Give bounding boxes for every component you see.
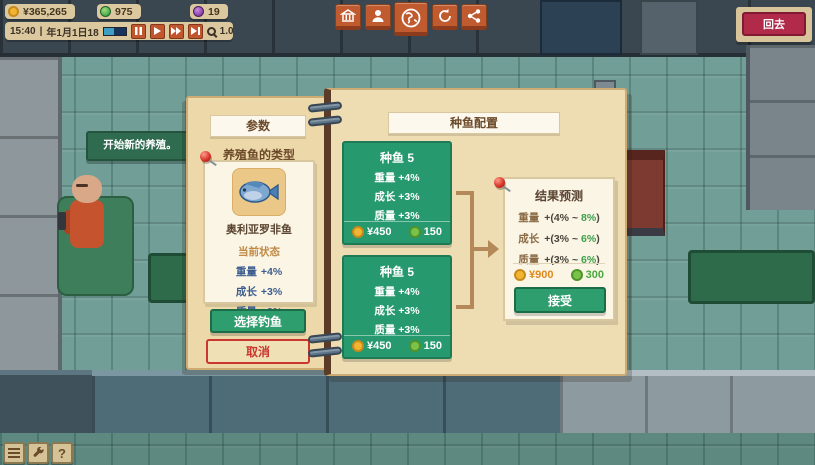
result-price-row: ¥900 300: [505, 269, 613, 281]
broodfish-1-stat-growth: 成长 +3%: [344, 189, 450, 204]
bottom-counter-right: [560, 370, 815, 433]
params-page: 参数 养殖鱼的类型 奥利亚罗非鱼 当前状态 重量+4% 成长+3%: [186, 96, 332, 370]
pushpin-icon: [494, 177, 505, 188]
cancel-button[interactable]: 取消: [206, 339, 310, 364]
connector-line: [470, 247, 490, 251]
gold-coin-icon: [352, 226, 364, 238]
world-button[interactable]: [394, 2, 428, 36]
config-header-banner: 种鱼配置: [388, 112, 560, 134]
broodfish-card-1[interactable]: 种鱼 5 重量 +4% 成长 +3% 质量 +3% ¥450 150: [342, 141, 452, 245]
character-held-item: [58, 212, 66, 230]
menu-button[interactable]: [3, 442, 25, 464]
accept-label: 接受: [548, 292, 572, 309]
result-stat-quality: 质量 +(3% ~ 6%): [505, 252, 613, 267]
speech-bubble: 开始新的养殖。: [86, 131, 194, 161]
broodfish-1-title: 种鱼 5: [344, 149, 450, 166]
gold-coin-icon: [352, 340, 364, 352]
help-icon: ?: [58, 446, 66, 461]
money-value: ¥365,265: [23, 6, 67, 18]
broodfish-card-2[interactable]: 种鱼 5 重量 +4% 成长 +3% 质量 +3% ¥450 150: [342, 255, 452, 359]
help-button[interactable]: ?: [51, 442, 73, 464]
appliance: [640, 0, 698, 55]
time-separator: |: [40, 26, 43, 37]
cancel-label: 取消: [246, 343, 270, 360]
left-sink-units: [0, 57, 62, 372]
play-icon: [154, 27, 161, 35]
select-fish-button[interactable]: 选择钓鱼: [210, 309, 306, 333]
feed-value: 975: [115, 6, 133, 18]
magnifier-icon[interactable]: [207, 27, 216, 36]
money-badge: ¥365,265: [5, 4, 75, 19]
fastest-icon: [191, 27, 200, 35]
fish-status-label: 当前状态: [205, 244, 313, 259]
params-header: 参数: [246, 119, 270, 133]
game-screen: 开始新的养殖。 ¥365,265 975 19 15:40 | 年1月1日18 …: [0, 0, 815, 465]
back-panel: 回去: [736, 7, 812, 42]
broodfish-2-stat-weight: 重量 +4%: [344, 284, 450, 299]
broodfish-1-stat-weight: 重量 +4%: [344, 170, 450, 185]
fast-forward-button[interactable]: [169, 24, 184, 39]
pushpin-icon: [200, 151, 211, 162]
feed-badge: 975: [97, 4, 141, 19]
building-icon: [340, 8, 356, 24]
gold-coin-icon: [8, 6, 19, 17]
character-icon: [370, 8, 386, 24]
fast-forward-icon: [171, 27, 181, 35]
cycle-button[interactable]: [432, 4, 458, 30]
result-stat-weight: 重量 +(4% ~ 8%): [505, 210, 613, 225]
result-prediction-card: 结果预测 重量 +(4% ~ 8%) 成长 +(3% ~ 6%) 质量 +(3%…: [503, 177, 615, 321]
character-body: [70, 200, 104, 248]
result-header: 结果预测: [505, 187, 613, 204]
bottom-counter-mid: [92, 370, 560, 433]
fish-image-tile: [232, 168, 286, 216]
config-page: 种鱼配置 种鱼 5 重量 +4% 成长 +3% 质量 +3% ¥450 150: [324, 88, 627, 376]
back-button-label: 回去: [763, 16, 785, 32]
broodfish-1-green-cost: 150: [424, 226, 442, 238]
accept-button[interactable]: 接受: [514, 287, 606, 313]
green-coin-icon: [409, 340, 421, 352]
divider: [344, 221, 450, 222]
character-button[interactable]: [365, 4, 391, 30]
result-green-cost: 300: [586, 269, 604, 281]
floor-shade: [0, 433, 815, 465]
select-fish-label: 选择钓鱼: [234, 313, 282, 330]
green-orb-icon: [100, 6, 111, 17]
fish-stat-weight: 重量+4%: [205, 264, 313, 279]
broodfish-1-gold-cost: ¥450: [367, 226, 391, 238]
settings-button[interactable]: [27, 442, 49, 464]
building-button[interactable]: [335, 4, 361, 30]
network-button[interactable]: [461, 4, 487, 30]
fish-card: 奥利亚罗非鱼 当前状态 重量+4% 成长+3% 质量+3%: [203, 160, 315, 304]
params-header-banner: 参数: [210, 115, 306, 137]
wrench-icon: [32, 447, 45, 460]
green-coin-icon: [571, 269, 583, 281]
config-header: 种鱼配置: [450, 116, 498, 130]
bottom-counter-left: [0, 370, 92, 433]
fridge: [540, 0, 622, 55]
broodfish-2-title: 种鱼 5: [344, 263, 450, 280]
broodfish-2-stat-growth: 成长 +3%: [344, 303, 450, 318]
cycle-icon: [437, 8, 453, 24]
right-lockers: [746, 45, 815, 210]
gem-value: 19: [208, 6, 220, 18]
divider: [344, 335, 450, 336]
divider: [513, 263, 605, 264]
connector-arrow-icon: [488, 240, 499, 258]
speech-bubble-text: 开始新的养殖。: [103, 139, 177, 151]
time-control-bar: 15:40 | 年1月1日18 1.0x: [5, 22, 233, 40]
menu-icon: [8, 452, 20, 454]
purple-orb-icon: [193, 6, 204, 17]
gem-badge: 19: [190, 4, 228, 19]
broodfish-2-green-cost: 150: [424, 340, 442, 352]
day-progress-bar: [103, 27, 127, 36]
fish-stat-growth: 成长+3%: [205, 284, 313, 299]
green-coin-icon: [409, 226, 421, 238]
result-gold-cost: ¥900: [529, 269, 553, 281]
back-button[interactable]: 回去: [742, 12, 806, 36]
character-head: [72, 175, 102, 203]
clock-time: 15:40: [10, 26, 36, 37]
broodfish-2-gold-cost: ¥450: [367, 340, 391, 352]
pause-icon: [135, 27, 142, 35]
network-icon: [466, 8, 482, 24]
green-table-right: [688, 250, 815, 304]
world-icon: [400, 7, 422, 29]
tilapia-fish-icon: [237, 177, 281, 207]
gold-coin-icon: [514, 269, 526, 281]
fastest-speed-button[interactable]: [188, 24, 203, 39]
result-stat-growth: 成长 +(3% ~ 6%): [505, 231, 613, 246]
broodfish-1-price-row: ¥450 150: [344, 226, 450, 238]
play-button[interactable]: [150, 24, 165, 39]
fish-name: 奥利亚罗非鱼: [205, 221, 313, 237]
broodfish-2-price-row: ¥450 150: [344, 340, 450, 352]
game-date: 年1月1日18: [46, 24, 98, 39]
pause-button[interactable]: [131, 24, 146, 39]
zoom-level: 1.0x: [220, 26, 233, 37]
character-brow: [76, 184, 88, 187]
